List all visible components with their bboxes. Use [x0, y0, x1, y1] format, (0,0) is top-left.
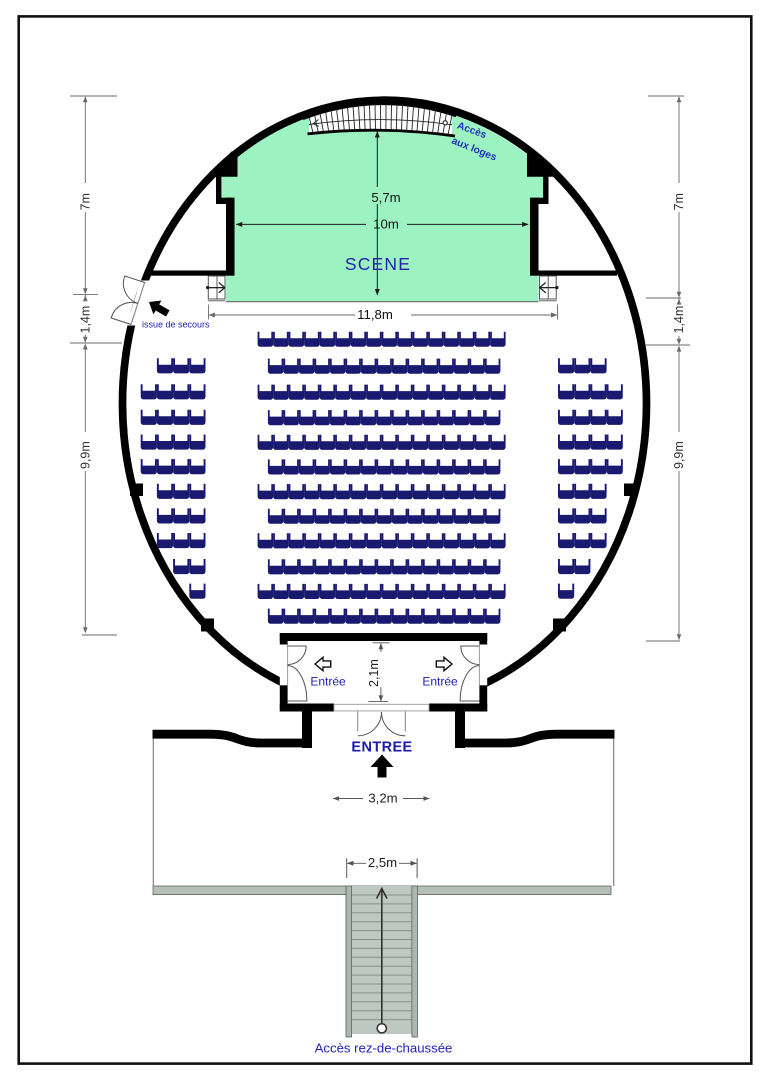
svg-text:1,4m: 1,4m [672, 306, 686, 334]
svg-text:2,1m: 2,1m [367, 659, 381, 687]
svg-text:Accès rez-de-chaussée: Accès rez-de-chaussée [315, 1041, 453, 1056]
svg-text:9,9m: 9,9m [672, 441, 686, 469]
svg-text:issue de secours: issue de secours [142, 320, 210, 330]
svg-text:ENTREE: ENTREE [351, 740, 412, 756]
svg-text:1,4m: 1,4m [79, 306, 93, 334]
svg-text:7m: 7m [672, 193, 686, 210]
svg-text:10m: 10m [373, 217, 399, 232]
svg-text:11,8m: 11,8m [357, 307, 393, 322]
svg-text:Entrée: Entrée [310, 675, 346, 689]
svg-text:3,2m: 3,2m [368, 791, 397, 806]
svg-text:7m: 7m [79, 193, 93, 210]
svg-text:Entrée: Entrée [422, 675, 458, 689]
svg-text:5,7m: 5,7m [371, 190, 400, 205]
svg-text:2,5m: 2,5m [368, 855, 397, 870]
svg-text:9,9m: 9,9m [79, 441, 93, 469]
svg-text:SCENE: SCENE [345, 254, 411, 274]
